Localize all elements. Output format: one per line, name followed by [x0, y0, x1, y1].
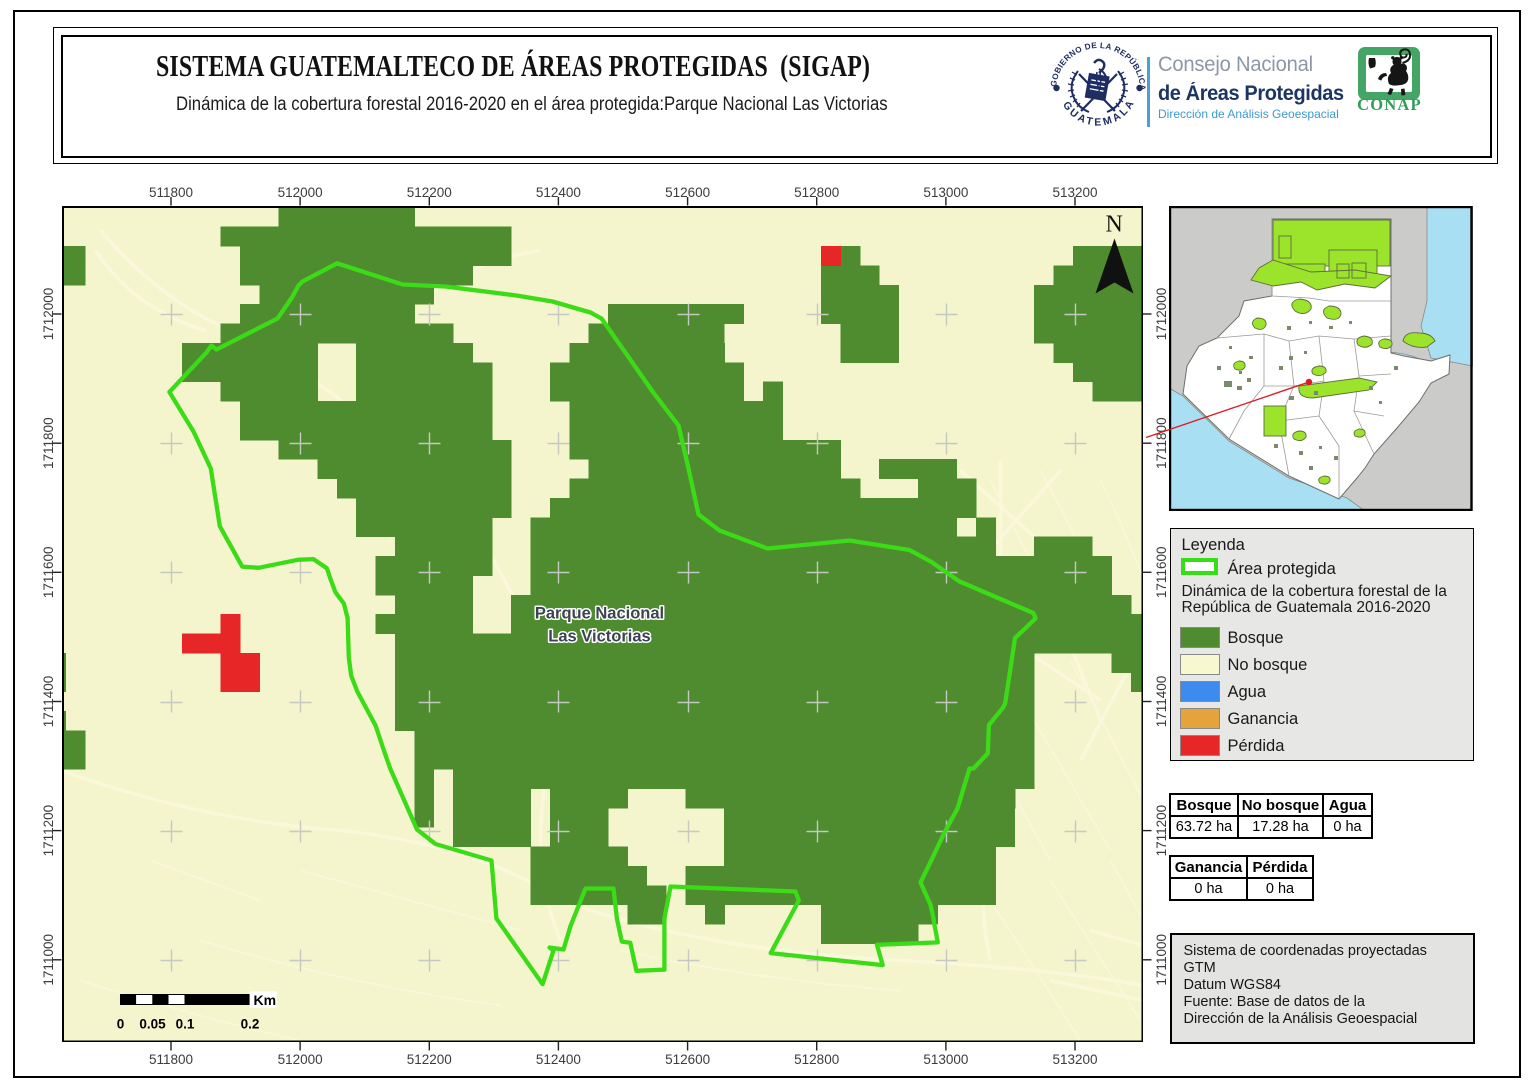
svg-text:Km: Km: [253, 992, 276, 1008]
svg-text:CONAP: CONAP: [1357, 95, 1422, 114]
svg-text:0: 0: [116, 1016, 124, 1031]
svg-text:N: N: [1105, 211, 1122, 237]
svg-text:0.05: 0.05: [139, 1016, 166, 1031]
svg-text:0.2: 0.2: [240, 1016, 259, 1031]
svg-text:Las Victorias: Las Victorias: [548, 627, 650, 645]
svg-text:GUATEMALA: GUATEMALA: [1060, 97, 1138, 129]
svg-text:0.1: 0.1: [175, 1016, 194, 1031]
svg-text:Parque Nacional: Parque Nacional: [534, 604, 663, 622]
